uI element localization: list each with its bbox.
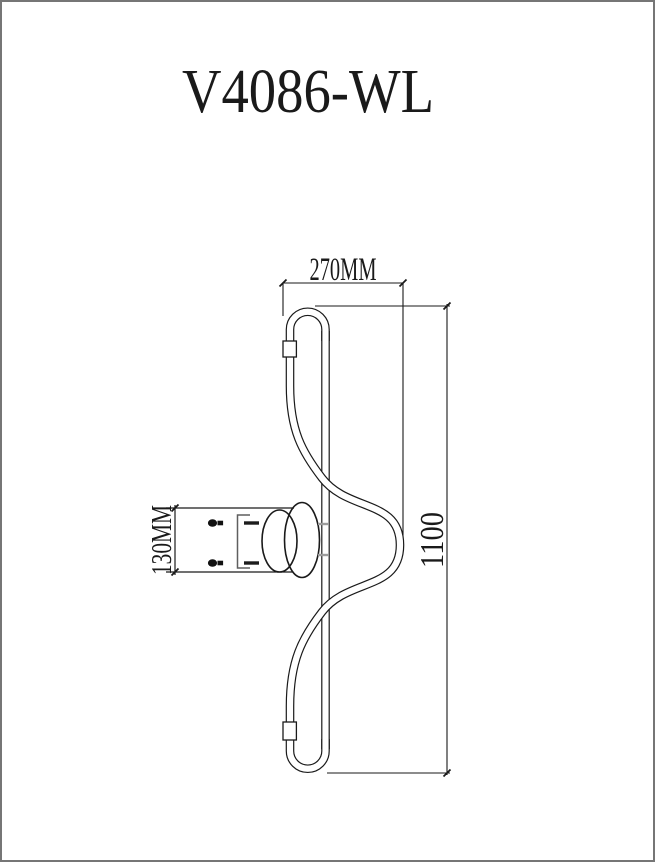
tube-connector-bottom bbox=[283, 722, 296, 740]
canopy-front-ellipse bbox=[262, 510, 297, 572]
screw-bottom-tip bbox=[218, 561, 224, 566]
screw-bottom-head bbox=[208, 559, 217, 566]
dim-label-bracket: 130MM bbox=[146, 505, 178, 575]
drawing-page: V4086-WL 270MM 1100 bbox=[0, 0, 655, 862]
lamp-tube bbox=[283, 312, 400, 769]
dim-label-width: 270MM bbox=[310, 252, 377, 288]
lamp-tube-curve-outline bbox=[290, 312, 400, 769]
mount-screws bbox=[208, 519, 223, 566]
lamp-tube-curve-fill bbox=[290, 312, 400, 769]
tube-connector-top bbox=[283, 341, 296, 357]
screw-top-head bbox=[208, 519, 217, 526]
screw-top-tip bbox=[218, 521, 224, 526]
model-title: V4086-WL bbox=[182, 58, 434, 126]
dim-label-height: 1100 bbox=[414, 512, 451, 568]
technical-drawing: V4086-WL 270MM 1100 bbox=[0, 0, 655, 862]
wall-mount bbox=[166, 503, 329, 578]
mount-plate bbox=[166, 505, 294, 575]
